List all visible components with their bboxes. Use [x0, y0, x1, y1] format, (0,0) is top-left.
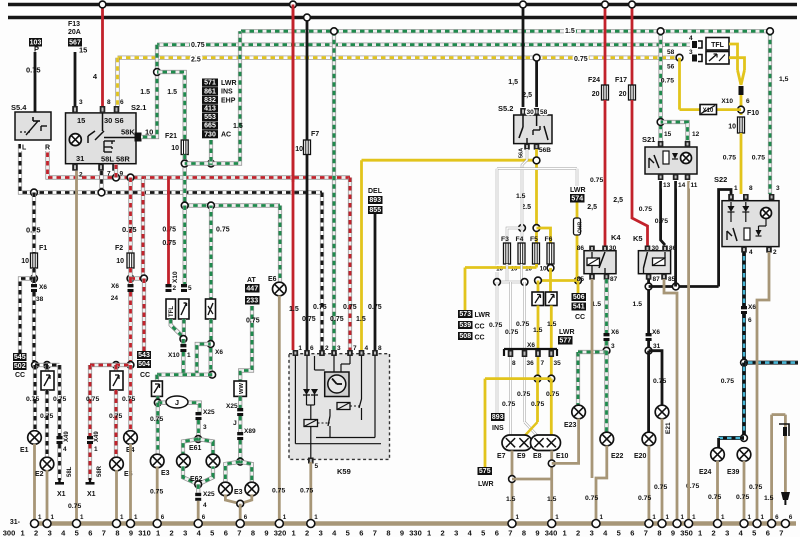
- svg-text:S6: S6: [115, 116, 124, 125]
- svg-text:F5: F5: [530, 236, 538, 243]
- svg-text:7: 7: [353, 345, 357, 352]
- svg-text:233: 233: [246, 298, 258, 305]
- svg-text:0.75: 0.75: [109, 413, 122, 420]
- svg-text:1: 1: [291, 529, 295, 537]
- svg-text:8: 8: [657, 529, 661, 537]
- svg-text:0.75: 0.75: [638, 495, 651, 502]
- svg-text:10: 10: [171, 145, 179, 152]
- svg-text:7: 7: [237, 529, 241, 537]
- svg-text:4: 4: [203, 502, 207, 509]
- svg-text:861: 861: [204, 88, 216, 95]
- svg-text:832: 832: [204, 97, 216, 104]
- svg-text:S5.4: S5.4: [11, 103, 27, 112]
- svg-text:X6: X6: [215, 349, 223, 356]
- svg-text:7: 7: [779, 529, 783, 537]
- svg-text:893: 893: [369, 197, 381, 204]
- svg-text:571: 571: [204, 80, 216, 87]
- svg-text:6: 6: [224, 529, 228, 537]
- svg-text:4: 4: [689, 35, 693, 42]
- svg-text:2,5: 2,5: [613, 197, 623, 204]
- svg-text:6: 6: [775, 514, 779, 521]
- svg-text:10: 10: [21, 258, 29, 265]
- svg-text:1.5: 1.5: [356, 316, 366, 323]
- svg-text:AC: AC: [221, 132, 231, 139]
- svg-text:730: 730: [204, 131, 216, 138]
- svg-text:3: 3: [689, 49, 693, 56]
- svg-text:E8: E8: [533, 453, 542, 460]
- svg-text:1.5: 1.5: [516, 193, 526, 200]
- svg-text:30: 30: [527, 109, 535, 116]
- svg-text:6: 6: [244, 514, 248, 521]
- svg-text:DEL: DEL: [368, 188, 383, 195]
- svg-text:14: 14: [678, 182, 686, 189]
- svg-text:9: 9: [129, 529, 133, 537]
- svg-text:350: 350: [680, 529, 693, 537]
- svg-text:1: 1: [652, 514, 656, 521]
- svg-text:X1: X1: [57, 491, 66, 498]
- svg-text:6: 6: [748, 317, 752, 324]
- svg-text:508: 508: [459, 333, 471, 340]
- svg-text:E39: E39: [727, 469, 740, 476]
- svg-text:0.75: 0.75: [313, 304, 327, 311]
- svg-text:56B: 56B: [539, 147, 551, 154]
- svg-text:F24: F24: [588, 77, 600, 84]
- svg-text:320: 320: [274, 529, 287, 537]
- svg-text:0.75: 0.75: [40, 413, 53, 420]
- svg-text:1: 1: [134, 514, 138, 521]
- svg-text:545: 545: [14, 354, 26, 361]
- svg-text:OHR: OHR: [578, 222, 584, 234]
- svg-text:6: 6: [120, 99, 124, 106]
- svg-text:X10: X10: [172, 271, 179, 283]
- svg-text:6: 6: [161, 514, 165, 521]
- svg-text:E3: E3: [161, 470, 170, 477]
- svg-text:1.5: 1.5: [289, 306, 299, 313]
- svg-text:2: 2: [712, 529, 716, 537]
- svg-text:56A: 56A: [519, 148, 525, 158]
- svg-text:1.5: 1.5: [233, 123, 243, 130]
- svg-text:577: 577: [559, 338, 571, 345]
- svg-text:0.75: 0.75: [162, 240, 176, 247]
- svg-text:F7: F7: [311, 131, 319, 138]
- svg-text:X6: X6: [748, 304, 756, 311]
- svg-text:8: 8: [115, 529, 119, 537]
- svg-text:F17: F17: [615, 77, 627, 84]
- svg-text:1: 1: [681, 514, 685, 521]
- svg-text:0.75: 0.75: [26, 66, 41, 75]
- svg-text:3: 3: [725, 529, 729, 537]
- svg-text:15: 15: [79, 46, 87, 55]
- svg-text:20: 20: [619, 91, 627, 98]
- svg-text:1.5: 1.5: [547, 321, 557, 328]
- svg-text:0.75: 0.75: [708, 494, 721, 501]
- svg-text:F6: F6: [545, 236, 553, 243]
- svg-text:LWR: LWR: [221, 80, 237, 87]
- svg-text:6: 6: [88, 529, 92, 537]
- svg-text:9: 9: [400, 529, 404, 537]
- svg-text:1.5: 1.5: [140, 89, 150, 96]
- svg-text:6: 6: [766, 529, 770, 537]
- svg-text:4: 4: [365, 345, 369, 352]
- svg-text:CC: CC: [15, 372, 25, 379]
- svg-text:543: 543: [138, 352, 150, 359]
- svg-text:0.75: 0.75: [26, 226, 41, 235]
- svg-text:6: 6: [359, 529, 363, 537]
- svg-text:3: 3: [337, 345, 341, 352]
- svg-text:58R: 58R: [97, 465, 103, 477]
- svg-text:LWR: LWR: [570, 187, 586, 194]
- svg-text:7: 7: [102, 529, 106, 537]
- svg-text:9: 9: [671, 529, 675, 537]
- svg-text:2: 2: [79, 172, 83, 179]
- svg-text:0.75: 0.75: [585, 495, 598, 502]
- svg-text:6: 6: [746, 98, 750, 105]
- svg-text:3: 3: [454, 529, 458, 537]
- svg-text:5: 5: [188, 285, 192, 292]
- svg-text:30: 30: [609, 245, 617, 252]
- svg-text:X89: X89: [244, 428, 256, 435]
- svg-text:541: 541: [573, 304, 585, 311]
- svg-text:S5.2: S5.2: [498, 104, 513, 113]
- svg-text:0.75: 0.75: [122, 225, 137, 234]
- svg-text:5: 5: [481, 529, 485, 537]
- svg-text:58K: 58K: [121, 128, 135, 137]
- svg-text:0.75: 0.75: [122, 396, 135, 403]
- svg-text:0.75: 0.75: [26, 396, 39, 403]
- svg-text:1: 1: [748, 514, 752, 521]
- svg-text:447: 447: [246, 286, 258, 293]
- svg-text:E7: E7: [497, 453, 506, 460]
- svg-text:X49: X49: [64, 431, 70, 442]
- svg-text:4: 4: [63, 446, 67, 453]
- svg-text:3: 3: [48, 529, 52, 537]
- svg-text:S2.1: S2.1: [131, 103, 146, 112]
- svg-text:1: 1: [516, 514, 520, 521]
- svg-text:24: 24: [111, 295, 119, 302]
- svg-text:X10: X10: [721, 98, 733, 105]
- svg-text:5: 5: [210, 529, 214, 537]
- svg-text:0.75: 0.75: [749, 484, 762, 491]
- svg-text:F10: F10: [747, 110, 759, 117]
- svg-text:X6: X6: [111, 283, 119, 290]
- svg-text:2: 2: [773, 249, 777, 256]
- svg-text:1,5: 1,5: [779, 76, 789, 83]
- svg-text:575: 575: [479, 468, 491, 475]
- svg-text:X6: X6: [527, 342, 535, 349]
- svg-text:85: 85: [577, 276, 585, 283]
- svg-text:X25: X25: [203, 491, 215, 498]
- svg-text:13: 13: [663, 182, 671, 189]
- svg-text:3: 3: [611, 343, 615, 350]
- svg-text:F1: F1: [39, 245, 47, 252]
- svg-text:1.5: 1.5: [764, 495, 774, 502]
- svg-text:1.5: 1.5: [547, 496, 557, 503]
- svg-text:12: 12: [692, 131, 700, 138]
- svg-text:TFL: TFL: [711, 42, 725, 49]
- svg-text:1: 1: [761, 514, 765, 521]
- svg-text:0.75: 0.75: [723, 155, 736, 162]
- svg-text:1: 1: [562, 529, 566, 537]
- svg-text:20: 20: [592, 91, 600, 98]
- svg-text:X25: X25: [226, 403, 238, 410]
- svg-text:0.75: 0.75: [53, 396, 66, 403]
- svg-text:7: 7: [508, 529, 512, 537]
- svg-text:31: 31: [653, 343, 661, 350]
- svg-text:35: 35: [554, 360, 562, 367]
- svg-text:2: 2: [305, 529, 309, 537]
- svg-text:E1: E1: [20, 447, 29, 454]
- svg-text:30: 30: [652, 245, 660, 252]
- svg-text:8: 8: [251, 529, 255, 537]
- svg-text:0.75: 0.75: [302, 316, 316, 323]
- svg-text:5: 5: [617, 529, 621, 537]
- svg-text:0.75: 0.75: [639, 206, 652, 213]
- svg-text:0.75: 0.75: [531, 401, 544, 408]
- svg-text:2: 2: [34, 529, 38, 537]
- svg-text:1: 1: [187, 352, 191, 359]
- svg-text:0.75: 0.75: [653, 378, 666, 385]
- svg-text:5: 5: [346, 529, 350, 537]
- svg-text:E2: E2: [35, 471, 44, 478]
- svg-text:1: 1: [94, 446, 98, 453]
- svg-text:9: 9: [120, 171, 124, 178]
- svg-text:413: 413: [204, 106, 216, 113]
- svg-text:WW: WW: [239, 383, 245, 394]
- svg-text:LWR: LWR: [559, 329, 575, 336]
- svg-text:0.75: 0.75: [343, 304, 357, 311]
- svg-text:0.75: 0.75: [574, 56, 588, 63]
- svg-text:10: 10: [295, 146, 303, 153]
- svg-text:5: 5: [315, 463, 319, 470]
- svg-text:E20: E20: [634, 453, 647, 460]
- svg-text:CC: CC: [475, 324, 485, 331]
- svg-text:893: 893: [492, 414, 504, 421]
- svg-text:S22: S22: [714, 175, 727, 184]
- svg-text:3: 3: [203, 424, 207, 431]
- svg-text:58L: 58L: [101, 155, 114, 164]
- svg-text:S21: S21: [642, 135, 655, 144]
- svg-text:1: 1: [80, 514, 84, 521]
- svg-text:0.75: 0.75: [330, 316, 344, 323]
- svg-text:0.75: 0.75: [300, 488, 313, 495]
- svg-text:58: 58: [667, 49, 675, 56]
- svg-text:TFL: TFL: [169, 306, 175, 317]
- svg-text:R: R: [45, 145, 50, 152]
- svg-text:0.75: 0.75: [590, 177, 603, 184]
- svg-text:30: 30: [104, 116, 112, 125]
- svg-text:E23: E23: [564, 422, 577, 429]
- svg-text:87: 87: [610, 276, 618, 283]
- svg-text:1: 1: [692, 514, 696, 521]
- svg-text:1: 1: [283, 514, 287, 521]
- svg-text:E21: E21: [665, 422, 672, 434]
- svg-text:2: 2: [325, 345, 329, 352]
- svg-text:INS: INS: [492, 425, 504, 432]
- svg-text:6: 6: [310, 345, 314, 352]
- svg-text:8: 8: [749, 185, 753, 192]
- svg-text:10: 10: [116, 258, 124, 265]
- svg-text:310: 310: [138, 529, 151, 537]
- svg-text:504: 504: [138, 361, 150, 368]
- svg-text:1: 1: [721, 514, 725, 521]
- svg-text:665: 665: [204, 123, 216, 130]
- svg-text:1: 1: [698, 529, 702, 537]
- svg-text:1: 1: [427, 529, 431, 537]
- svg-text:2.5: 2.5: [191, 57, 201, 64]
- svg-text:5: 5: [752, 529, 756, 537]
- svg-text:8: 8: [378, 345, 382, 352]
- svg-text:0.75: 0.75: [517, 391, 530, 398]
- svg-text:300: 300: [3, 529, 16, 537]
- svg-text:7: 7: [107, 171, 111, 178]
- svg-text:2,5: 2,5: [587, 204, 597, 211]
- svg-text:E24: E24: [699, 469, 712, 476]
- svg-text:0.75: 0.75: [272, 488, 285, 495]
- svg-text:E9: E9: [517, 453, 526, 460]
- svg-text:3: 3: [79, 99, 83, 106]
- svg-text:0.75: 0.75: [655, 218, 668, 225]
- svg-text:1: 1: [51, 514, 55, 521]
- svg-text:4: 4: [749, 249, 753, 256]
- svg-text:11: 11: [691, 182, 698, 189]
- svg-text:1.5: 1.5: [506, 496, 516, 503]
- svg-text:1: 1: [298, 345, 302, 352]
- svg-text:2: 2: [173, 285, 177, 292]
- svg-text:1.5: 1.5: [633, 301, 643, 308]
- svg-text:58L: 58L: [67, 466, 73, 477]
- svg-text:CC: CC: [475, 335, 485, 342]
- svg-text:539: 539: [459, 322, 471, 329]
- svg-text:1.5: 1.5: [533, 327, 543, 334]
- svg-text:E61: E61: [189, 445, 202, 452]
- svg-text:1: 1: [38, 514, 42, 521]
- svg-text:0.75: 0.75: [86, 396, 99, 403]
- svg-text:AT: AT: [247, 277, 257, 284]
- svg-text:58R: 58R: [116, 155, 130, 164]
- svg-text:J: J: [233, 420, 237, 427]
- svg-text:5: 5: [75, 529, 79, 537]
- svg-text:X6: X6: [611, 329, 619, 336]
- svg-text:0.75: 0.75: [216, 227, 230, 234]
- svg-text:87: 87: [653, 276, 661, 283]
- svg-text:553: 553: [204, 114, 216, 121]
- svg-text:INS: INS: [221, 89, 233, 96]
- svg-text:X1: X1: [87, 491, 96, 498]
- svg-text:10: 10: [540, 266, 547, 273]
- svg-text:1: 1: [600, 514, 604, 521]
- svg-text:1.5: 1.5: [167, 89, 177, 96]
- svg-text:340: 340: [545, 529, 558, 537]
- svg-text:K4: K4: [611, 233, 621, 242]
- svg-text:3: 3: [319, 529, 323, 537]
- svg-text:X6: X6: [652, 329, 660, 336]
- svg-text:F13: F13: [68, 21, 80, 28]
- svg-text:8: 8: [522, 529, 526, 537]
- svg-text:1: 1: [734, 185, 738, 192]
- svg-text:8: 8: [512, 360, 516, 367]
- svg-text:0.75: 0.75: [546, 391, 559, 398]
- svg-text:855: 855: [369, 207, 381, 214]
- svg-text:20A: 20A: [68, 29, 81, 36]
- svg-text:E6: E6: [268, 276, 277, 283]
- svg-text:J: J: [175, 398, 179, 407]
- svg-text:1,5: 1,5: [508, 79, 518, 86]
- svg-text:2,5: 2,5: [522, 92, 532, 99]
- svg-text:6: 6: [495, 529, 499, 537]
- svg-text:0.75: 0.75: [489, 322, 502, 329]
- svg-text:P: P: [34, 45, 39, 54]
- svg-text:0.75: 0.75: [661, 78, 674, 85]
- svg-text:CC: CC: [140, 372, 150, 379]
- svg-text:10: 10: [728, 124, 736, 131]
- svg-text:1: 1: [666, 514, 670, 521]
- svg-text:X49: X49: [94, 431, 100, 442]
- svg-text:F21: F21: [165, 133, 177, 140]
- svg-text:F3: F3: [501, 236, 509, 243]
- svg-text:E10: E10: [556, 453, 569, 460]
- svg-text:15: 15: [77, 116, 85, 125]
- svg-text:31: 31: [76, 154, 84, 163]
- svg-text:E3: E3: [234, 489, 243, 496]
- svg-text:EHP: EHP: [221, 97, 236, 104]
- svg-text:31-: 31-: [10, 519, 21, 526]
- svg-text:0.75: 0.75: [150, 416, 163, 423]
- svg-text:8: 8: [386, 529, 390, 537]
- svg-text:6: 6: [789, 514, 793, 521]
- svg-text:8: 8: [107, 99, 111, 106]
- svg-text:7: 7: [644, 529, 648, 537]
- svg-text:0.75: 0.75: [68, 503, 81, 510]
- svg-text:E22: E22: [611, 453, 624, 460]
- svg-text:38: 38: [36, 296, 44, 303]
- svg-text:1.5: 1.5: [565, 28, 575, 35]
- svg-text:6: 6: [202, 514, 206, 521]
- svg-text:1: 1: [314, 514, 318, 521]
- svg-text:X10: X10: [168, 352, 180, 359]
- svg-text:X6: X6: [39, 284, 47, 291]
- svg-text:F4: F4: [516, 236, 524, 243]
- svg-text:573: 573: [459, 311, 471, 318]
- svg-text:15: 15: [664, 131, 672, 138]
- svg-text:7: 7: [373, 529, 377, 537]
- svg-text:9: 9: [535, 529, 539, 537]
- svg-text:0.75: 0.75: [502, 401, 515, 408]
- svg-text:0.75: 0.75: [150, 489, 163, 496]
- svg-text:58: 58: [540, 109, 548, 116]
- svg-text:0.75: 0.75: [721, 378, 734, 385]
- svg-text:1: 1: [20, 529, 24, 537]
- svg-text:2: 2: [170, 529, 174, 537]
- svg-text:1: 1: [555, 514, 559, 521]
- svg-text:6: 6: [630, 529, 634, 537]
- svg-text:L: L: [22, 145, 27, 152]
- svg-text:LWR: LWR: [475, 312, 491, 319]
- svg-text:3: 3: [590, 529, 594, 537]
- svg-text:574: 574: [571, 196, 583, 203]
- svg-text:506: 506: [573, 294, 585, 301]
- svg-text:3: 3: [183, 529, 187, 537]
- svg-text:330: 330: [409, 529, 422, 537]
- svg-text:0.75: 0.75: [516, 321, 529, 328]
- svg-text:0.75: 0.75: [368, 304, 382, 311]
- svg-text:0.75: 0.75: [736, 494, 749, 501]
- svg-text:2: 2: [441, 529, 445, 537]
- svg-text:0.75: 0.75: [191, 42, 205, 49]
- svg-text:7: 7: [541, 360, 545, 367]
- svg-text:0.75: 0.75: [505, 329, 518, 336]
- svg-text:2: 2: [576, 529, 580, 537]
- svg-text:1: 1: [156, 529, 160, 537]
